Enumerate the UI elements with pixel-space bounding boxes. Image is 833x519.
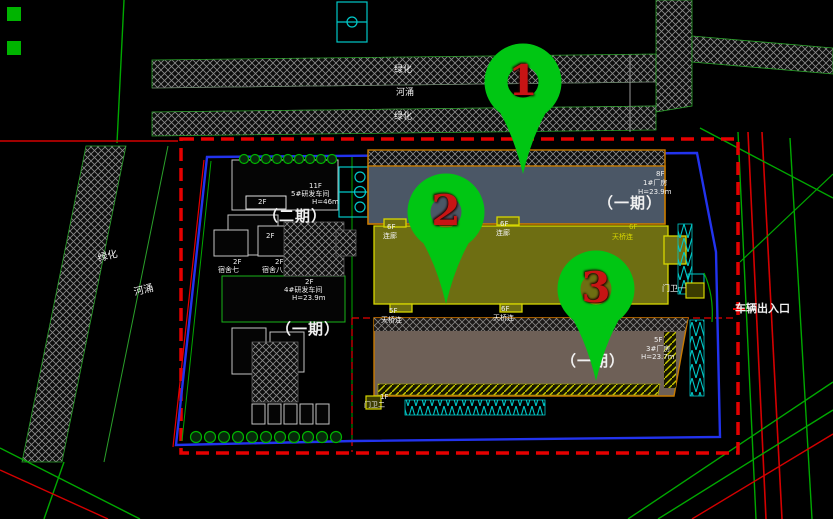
yard-floors: 2F [266,233,274,240]
bridge5-floors: 5F [389,308,397,315]
b1-height: H=23.9m [638,189,672,196]
rd4-height: H=23.9m [292,295,326,302]
site-plan-screenshot: 绿化 河涌 绿化 绿化 河涌 （二期） （一期） （一期） （一期） 8F 1#… [0,0,833,519]
legend-green-squares [7,7,21,55]
north-green-label-1: 绿化 [394,66,412,75]
north-greenery-river-strip [152,0,833,136]
bridge6-floors: 6F [501,306,509,313]
phase2-label: （二期） [263,209,327,225]
gate1-name: 门卫一 [662,285,686,293]
marker-1-number[interactable]: 1 [501,56,545,105]
north-river-label: 河涌 [396,89,414,98]
marker-3-number[interactable]: 3 [574,263,618,312]
building-2-factory [374,217,686,312]
b3-floors: 5F [654,337,662,344]
rd5-height: H=46m [312,199,339,206]
phase1-b1-label: （一期） [598,196,662,212]
bridge-yellow-floors: 6F [629,224,637,231]
b1-floors: 8F [656,171,664,178]
cad-site-plan [0,0,833,519]
phase1-b3-label: （一期） [561,354,625,370]
bridge6-name: 天桥连 [493,315,514,322]
b3-height: H=23.7m [641,354,675,361]
phase1-west-label: （一期） [276,322,340,338]
link-left-floors: 6F [387,224,395,231]
north-green-label-2: 绿化 [394,113,412,122]
dorm7-name: 宿舍七 [218,267,239,274]
link-left-name: 连廊 [383,233,397,240]
bridge5-name: 天桥连 [381,317,402,324]
b1-name: 1#厂房 [643,180,667,187]
building-1-factory [368,150,665,224]
vehicle-entrance-label: 车辆出入口 [735,303,790,315]
marker-2-number[interactable]: 2 [424,186,468,235]
dorm8-name: 宿舍八 [262,267,283,274]
link-mid-floors: 6F [500,221,508,228]
rd5-annex-floors: 2F [258,199,266,206]
link-mid-name: 连廊 [496,230,510,237]
gate2-name: 门卫二 [364,402,385,409]
west-greenery-river-strip [22,146,168,462]
bridge-yellow-name: 天桥连 [612,234,633,241]
